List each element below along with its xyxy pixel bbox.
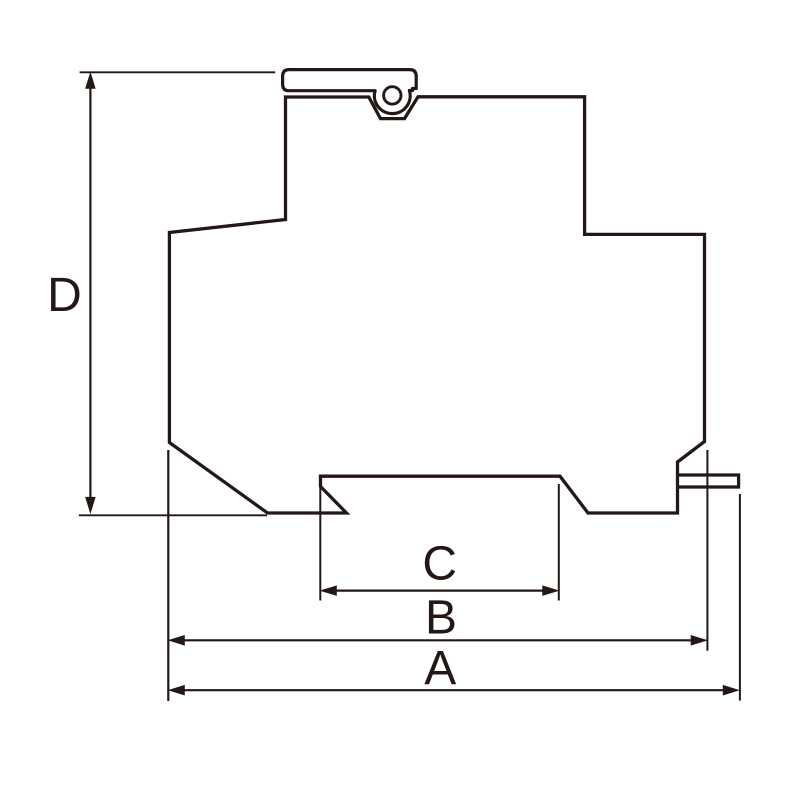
svg-text:D: D — [47, 269, 82, 322]
svg-text:A: A — [424, 642, 456, 695]
svg-text:B: B — [425, 592, 457, 645]
svg-text:C: C — [422, 537, 457, 590]
